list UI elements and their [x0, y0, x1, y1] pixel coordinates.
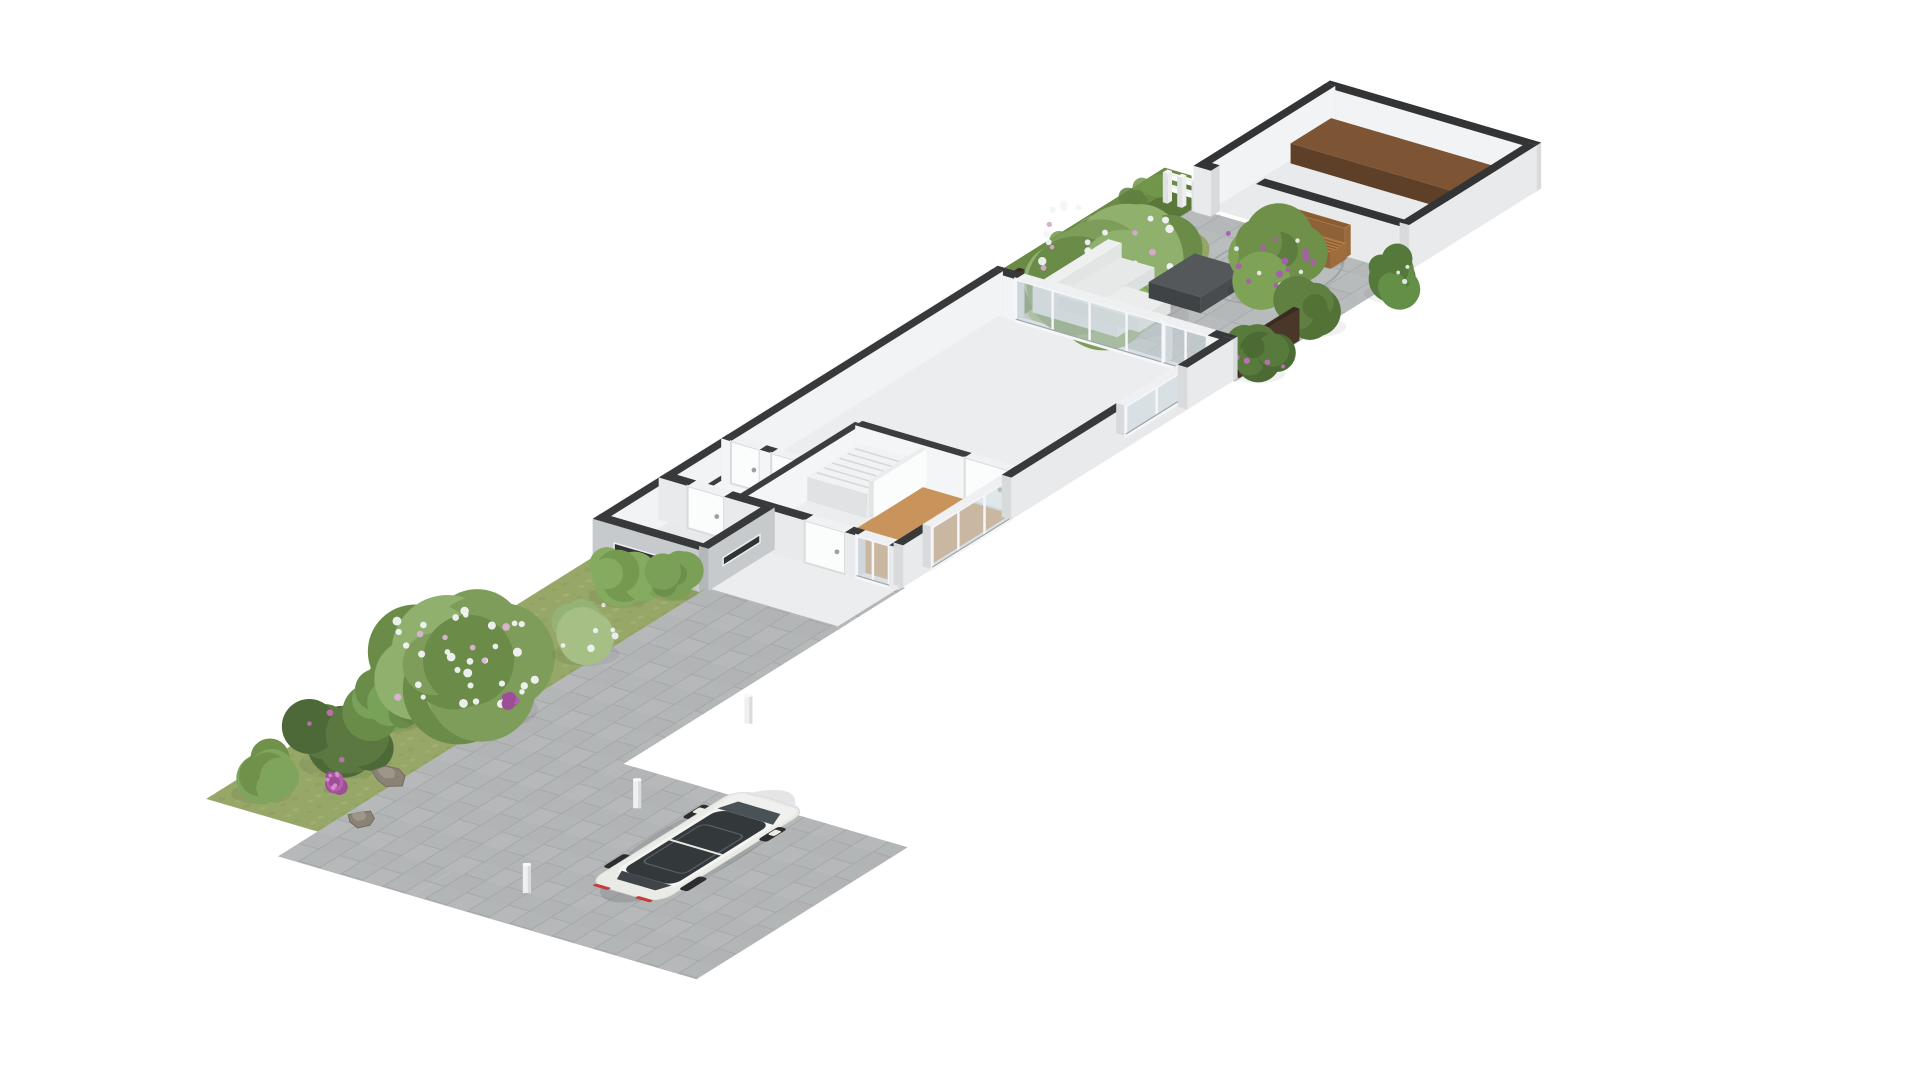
shrub-front-5 — [644, 551, 703, 601]
ground-plane — [167, 122, 1819, 979]
wall-shed-front-a — [1194, 160, 1220, 217]
floorplan-canvas — [0, 0, 1920, 1080]
floorplan-3d-view — [0, 0, 1920, 1080]
